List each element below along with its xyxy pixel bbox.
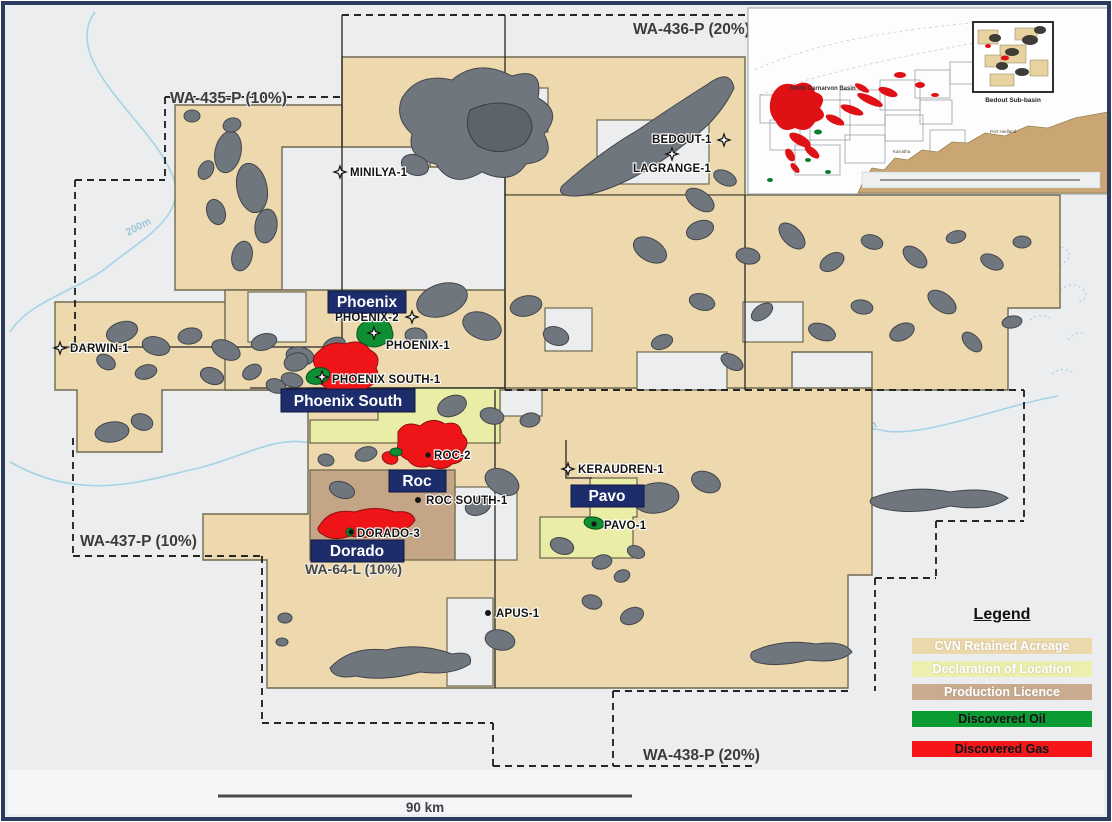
licence-label-wa436: WA-436-P (20%) <box>633 21 750 38</box>
acreage-map-figure: 200m 100m <box>0 0 1112 822</box>
legend: Legend CVN Retained Acreage Declaration … <box>912 606 1092 764</box>
well-label: ROC SOUTH-1 <box>426 495 508 507</box>
well-label: PAVO-1 <box>604 520 647 532</box>
well-phoenix-south-1: PHOENIX SOUTH-1 <box>316 371 441 386</box>
inset-basin-label: North Carnarvon Basin <box>790 86 856 92</box>
field-label-dorado: Dorado <box>311 540 404 562</box>
well-label: DORADO-3 <box>357 528 420 540</box>
field-label-text: Phoenix <box>337 294 398 311</box>
well-label: MINILYA-1 <box>350 167 408 179</box>
field-label-pavo: Pavo <box>571 485 644 507</box>
inset-town-karratha: Karratha <box>893 149 911 154</box>
field-label-text: Roc <box>402 473 432 490</box>
inset-box-label: Bedout Sub-basin <box>985 97 1041 104</box>
well-dorado-3: DORADO-3 <box>348 528 420 540</box>
inset-town-port-hedland: Port Hedland <box>990 129 1017 134</box>
licence-label-wa438: WA-438-P (20%) <box>643 747 760 764</box>
well-keraudren-1: KERAUDREN-1 <box>562 463 664 476</box>
well-label: KERAUDREN-1 <box>578 464 664 476</box>
well-phoenix-1: PHOENIX-1 <box>386 340 450 352</box>
field-label-phoenix: Phoenix <box>328 291 406 313</box>
well-roc-south-1: ROC SOUTH-1 <box>415 495 508 507</box>
well-label: LAGRANGE-1 <box>633 163 711 175</box>
well-label: PHOENIX SOUTH-1 <box>332 374 441 386</box>
legend-item-discovered-gas: Discovered Gas <box>912 741 1092 757</box>
scalebar-strip <box>8 770 1104 814</box>
legend-item-production-licence: Production Licence <box>912 684 1092 700</box>
field-label-text: Pavo <box>588 488 625 505</box>
field-label-text: Dorado <box>330 543 384 560</box>
field-label-text: Phoenix South <box>294 393 403 410</box>
inset-map: North Carnarvon Basin Bedout Sub-basin K… <box>748 8 1108 194</box>
licence-label-wa64l: WA-64-L (10%) <box>305 561 402 577</box>
inset-bedout-box <box>973 22 1053 92</box>
field-label-roc: Roc <box>389 470 446 492</box>
legend-item-discovered-oil: Discovered Oil <box>912 711 1092 727</box>
scale-bar-label: 90 km <box>406 800 444 815</box>
field-label-phoenix-south: Phoenix South <box>281 389 415 412</box>
well-label: PHOENIX-2 <box>335 312 399 324</box>
well-label: DARWIN-1 <box>70 343 129 355</box>
legend-item-cvn-retained-acreage: CVN Retained Acreage <box>912 638 1092 654</box>
legend-title: Legend <box>912 606 1092 624</box>
licence-label-wa437: WA-437-P (10%) <box>80 533 197 550</box>
well-label: PHOENIX-1 <box>386 340 450 352</box>
legend-item-declaration-of-location: Declaration of Location <box>912 661 1092 677</box>
well-label: ROC-2 <box>434 450 471 462</box>
well-label: BEDOUT-1 <box>652 134 712 146</box>
well-label: APUS-1 <box>496 608 540 620</box>
licence-label-wa435: WA-435-P (10%) <box>170 90 287 107</box>
